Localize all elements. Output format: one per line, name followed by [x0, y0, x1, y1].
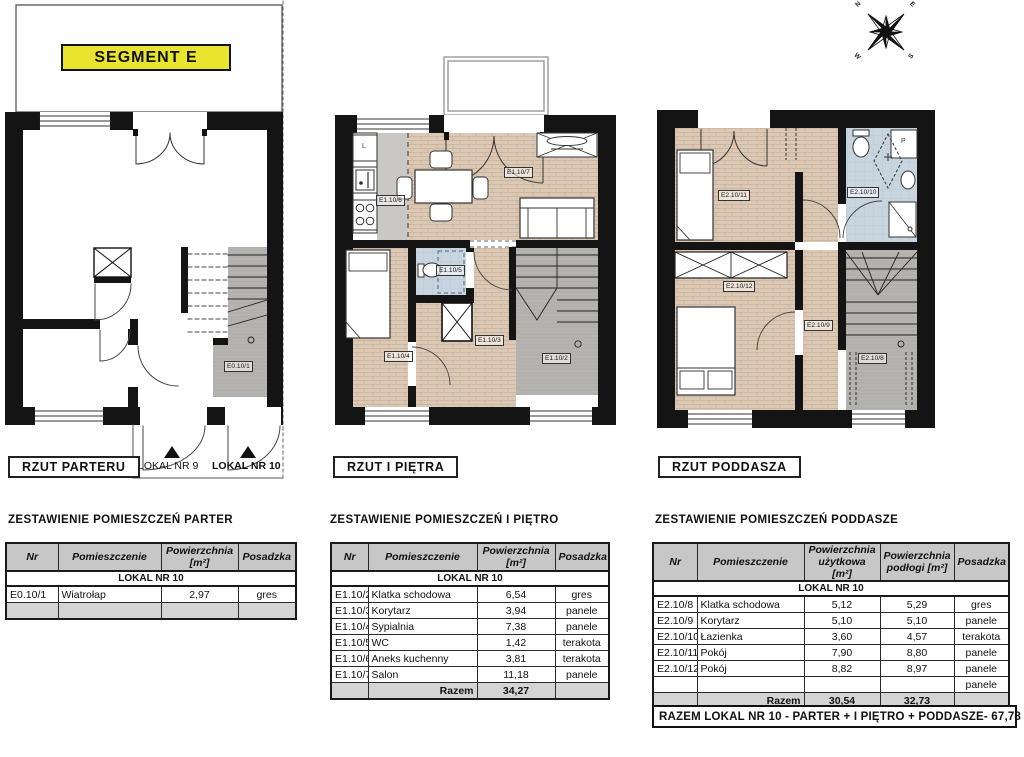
parter-entry-arrows [164, 446, 256, 458]
table-row: E2.10/8 Klatka schodowa 5,12 5,29 gres [653, 596, 1009, 613]
cell-empty [331, 683, 368, 700]
total-label: Razem [368, 683, 477, 700]
cell-floor-area: 8,97 [880, 661, 954, 677]
cell-room: Pokój [697, 661, 804, 677]
table-title-parter: ZESTAWIENIE POMIESZCZEŃ PARTER [8, 514, 233, 526]
table-pietro: Nr Pomieszczenie Powierzchnia [m²] Posad… [330, 542, 610, 700]
cell-nr: E2.10/9 [653, 613, 697, 629]
cell-area: 7,38 [477, 619, 555, 635]
cell-room: Korytarz [697, 613, 804, 629]
table-row: panele [653, 677, 1009, 693]
cell-floor: gres [555, 586, 609, 603]
cell-floor-area: 5,29 [880, 596, 954, 613]
lokal-10-label: LOKAL NR 10 [212, 460, 281, 472]
parter-french-door [133, 129, 207, 164]
cell-nr: E1.10/7 [331, 667, 368, 683]
pietro-bed [346, 250, 390, 338]
cell-empty [653, 677, 697, 693]
header-nr: Nr [6, 543, 58, 571]
cell-floor: terakota [555, 635, 609, 651]
room-label-klatka-pietro: E1.10/2 [542, 353, 571, 364]
cell-room: Salon [368, 667, 477, 683]
room-label-korytarz-pietro: E1.10/3 [475, 335, 504, 346]
table-row: E2.10/12 Pokój 8,82 8,97 panele [653, 661, 1009, 677]
table-row: E1.10/2 Klatka schodowa 6,54 gres [331, 586, 609, 603]
cell-floor: panele [555, 603, 609, 619]
table-row [6, 603, 296, 620]
table-row: E2.10/11 Pokój 7,90 8,80 panele [653, 645, 1009, 661]
room-label-aneks: E1.10/6 [376, 195, 405, 206]
room-label-klatka-poddasze: E2.10/8 [858, 353, 887, 364]
cell-room: Korytarz [368, 603, 477, 619]
parter-chimney-shaft [94, 248, 131, 277]
cell-area: 3,94 [477, 603, 555, 619]
cell-floor: terakota [954, 629, 1009, 645]
poddasze-bed-single [677, 150, 713, 240]
cell-room: Pokój [697, 645, 804, 661]
cell-floor: terakota [555, 651, 609, 667]
room-label-pokoj1: E2.10/11 [718, 190, 750, 201]
cell-floor-area: 4,57 [880, 629, 954, 645]
cell-empty [238, 603, 296, 620]
table-row: E1.10/7 Salon 11,18 panele [331, 667, 609, 683]
cell-empty [161, 603, 238, 620]
room-label-korytarz-poddasze: E2.10/9 [804, 320, 833, 331]
header-floor: Posadzka [555, 543, 609, 571]
table-row: E2.10/9 Korytarz 5,10 5,10 panele [653, 613, 1009, 629]
fridge-letter: L [362, 143, 366, 150]
washer-letter: P [901, 138, 906, 145]
cell-nr: E1.10/2 [331, 586, 368, 603]
header-area-floor: Powierzchnia podłogi [m²] [880, 543, 954, 581]
cell-nr: E0.10/1 [6, 586, 58, 603]
cell-nr: E2.10/11 [653, 645, 697, 661]
table-title-poddasze: ZESTAWIENIE POMIESZCZEŃ PODDASZE [655, 514, 898, 526]
plan-title-pietro: RZUT I PIĘTRA [333, 456, 458, 478]
cell-floor: panele [954, 661, 1009, 677]
poddasze-bed-double [677, 307, 735, 395]
table-row: E1.10/4 Sypialnia 7,38 panele [331, 619, 609, 635]
table-row: E0.10/1 Wiatrołap 2,97 gres [6, 586, 296, 603]
cell-nr: E1.10/3 [331, 603, 368, 619]
header-floor: Posadzka [954, 543, 1009, 581]
pietro-sofa [520, 198, 594, 238]
cell-nr: E2.10/10 [653, 629, 697, 645]
cell-nr: E1.10/6 [331, 651, 368, 667]
cell-room: Wiatrołap [58, 586, 161, 603]
plan-parter [5, 1, 283, 478]
lokal-9-label: LOKAL NR 9 [138, 460, 198, 472]
group-label: LOKAL NR 10 [6, 571, 296, 586]
segment-banner: SEGMENT E [61, 44, 231, 71]
cell-usable: 7,90 [804, 645, 880, 661]
cell-floor: gres [238, 586, 296, 603]
cell-floor-area: 5,10 [880, 613, 954, 629]
cell-area: 11,18 [477, 667, 555, 683]
cell-floor: panele [555, 667, 609, 683]
cell-empty [880, 677, 954, 693]
poddasze-wardrobe [675, 252, 787, 278]
header-nr: Nr [653, 543, 697, 581]
table-row: LOKAL NR 10 [6, 571, 296, 586]
cell-usable: 3,60 [804, 629, 880, 645]
cell-area: 2,97 [161, 586, 238, 603]
pietro-tv-unit [537, 133, 597, 157]
table-row: E1.10/6 Aneks kuchenny 3,81 terakota [331, 651, 609, 667]
parter-staircase [188, 247, 267, 345]
table-row: Nr Pomieszczenie Powierzchnia użytkowa [… [653, 543, 1009, 581]
pietro-balcony [444, 57, 548, 115]
pietro-shaft [442, 303, 472, 341]
parter-garden-outline [16, 1, 283, 478]
cell-area: 3,81 [477, 651, 555, 667]
plan-title-parter: RZUT PARTERU [8, 456, 140, 478]
header-room: Pomieszczenie [697, 543, 804, 581]
cell-usable: 5,12 [804, 596, 880, 613]
header-floor: Posadzka [238, 543, 296, 571]
cell-empty [58, 603, 161, 620]
group-label: LOKAL NR 10 [653, 581, 1009, 596]
cell-floor: panele [954, 613, 1009, 629]
plan-title-poddasze: RZUT PODDASZA [658, 456, 801, 478]
header-area: Powierzchnia [m²] [161, 543, 238, 571]
table-poddasze: Nr Pomieszczenie Powierzchnia użytkowa [… [652, 542, 1010, 710]
cell-nr: E1.10/4 [331, 619, 368, 635]
cell-room: Łazienka [697, 629, 804, 645]
cell-floor: panele [954, 677, 1009, 693]
cell-room: Klatka schodowa [368, 586, 477, 603]
cell-floor: panele [555, 619, 609, 635]
room-label-pokoj2: E2.10/12 [723, 281, 755, 292]
room-label-wc: E1.10/5 [436, 265, 465, 276]
room-label-salon: E1.10/7 [504, 167, 533, 178]
room-label-sypialnia: E1.10/4 [384, 351, 413, 362]
cell-floor: panele [954, 645, 1009, 661]
table-row: Nr Pomieszczenie Powierzchnia [m²] Posad… [6, 543, 296, 571]
plan-poddasze [657, 110, 935, 428]
cell-room: Aneks kuchenny [368, 651, 477, 667]
header-area: Powierzchnia [m²] [477, 543, 555, 571]
cell-floor-area: 8,80 [880, 645, 954, 661]
cell-nr: E1.10/5 [331, 635, 368, 651]
cell-empty [804, 677, 880, 693]
group-label: LOKAL NR 10 [331, 571, 609, 586]
plans-drawing [0, 0, 1024, 500]
header-area-usable: Powierzchnia użytkowa [m²] [804, 543, 880, 581]
table-row: E2.10/10 Łazienka 3,60 4,57 terakota [653, 629, 1009, 645]
cell-nr: E2.10/8 [653, 596, 697, 613]
room-label-lazienka: E2.10/10 [847, 187, 879, 198]
table-title-pietro: ZESTAWIENIE POMIESZCZEŃ I PIĘTRO [330, 514, 559, 526]
table-parter: Nr Pomieszczenie Powierzchnia [m²] Posad… [5, 542, 297, 620]
compass-rose-icon [868, 14, 904, 50]
cell-empty [697, 677, 804, 693]
cell-usable: 5,10 [804, 613, 880, 629]
table-total-row: Razem 34,27 [331, 683, 609, 700]
cell-area: 1,42 [477, 635, 555, 651]
cell-usable: 8,82 [804, 661, 880, 677]
cell-empty [6, 603, 58, 620]
plan-pietro [335, 57, 616, 425]
total-area: 34,27 [477, 683, 555, 700]
table-row: E1.10/5 WC 1,42 terakota [331, 635, 609, 651]
header-room: Pomieszczenie [368, 543, 477, 571]
header-nr: Nr [331, 543, 368, 571]
cell-nr: E2.10/12 [653, 661, 697, 677]
table-row: E1.10/3 Korytarz 3,94 panele [331, 603, 609, 619]
table-row: LOKAL NR 10 [653, 581, 1009, 596]
header-room: Pomieszczenie [58, 543, 161, 571]
cell-floor: gres [954, 596, 1009, 613]
cell-room: Klatka schodowa [697, 596, 804, 613]
room-label-wiatrolap: E0.10/1 [224, 361, 253, 372]
table-row: Nr Pomieszczenie Powierzchnia [m²] Posad… [331, 543, 609, 571]
cell-area: 6,54 [477, 586, 555, 603]
cell-empty [555, 683, 609, 700]
table-row: LOKAL NR 10 [331, 571, 609, 586]
floorplan-sheet: N E S W SEGMENT E L P E0.10/1 E1.10/6 E1… [0, 0, 1024, 757]
cell-room: Sypialnia [368, 619, 477, 635]
cell-room: WC [368, 635, 477, 651]
summary-total-bar: RAZEM LOKAL NR 10 - PARTER + I PIĘTRO + … [652, 705, 1017, 728]
